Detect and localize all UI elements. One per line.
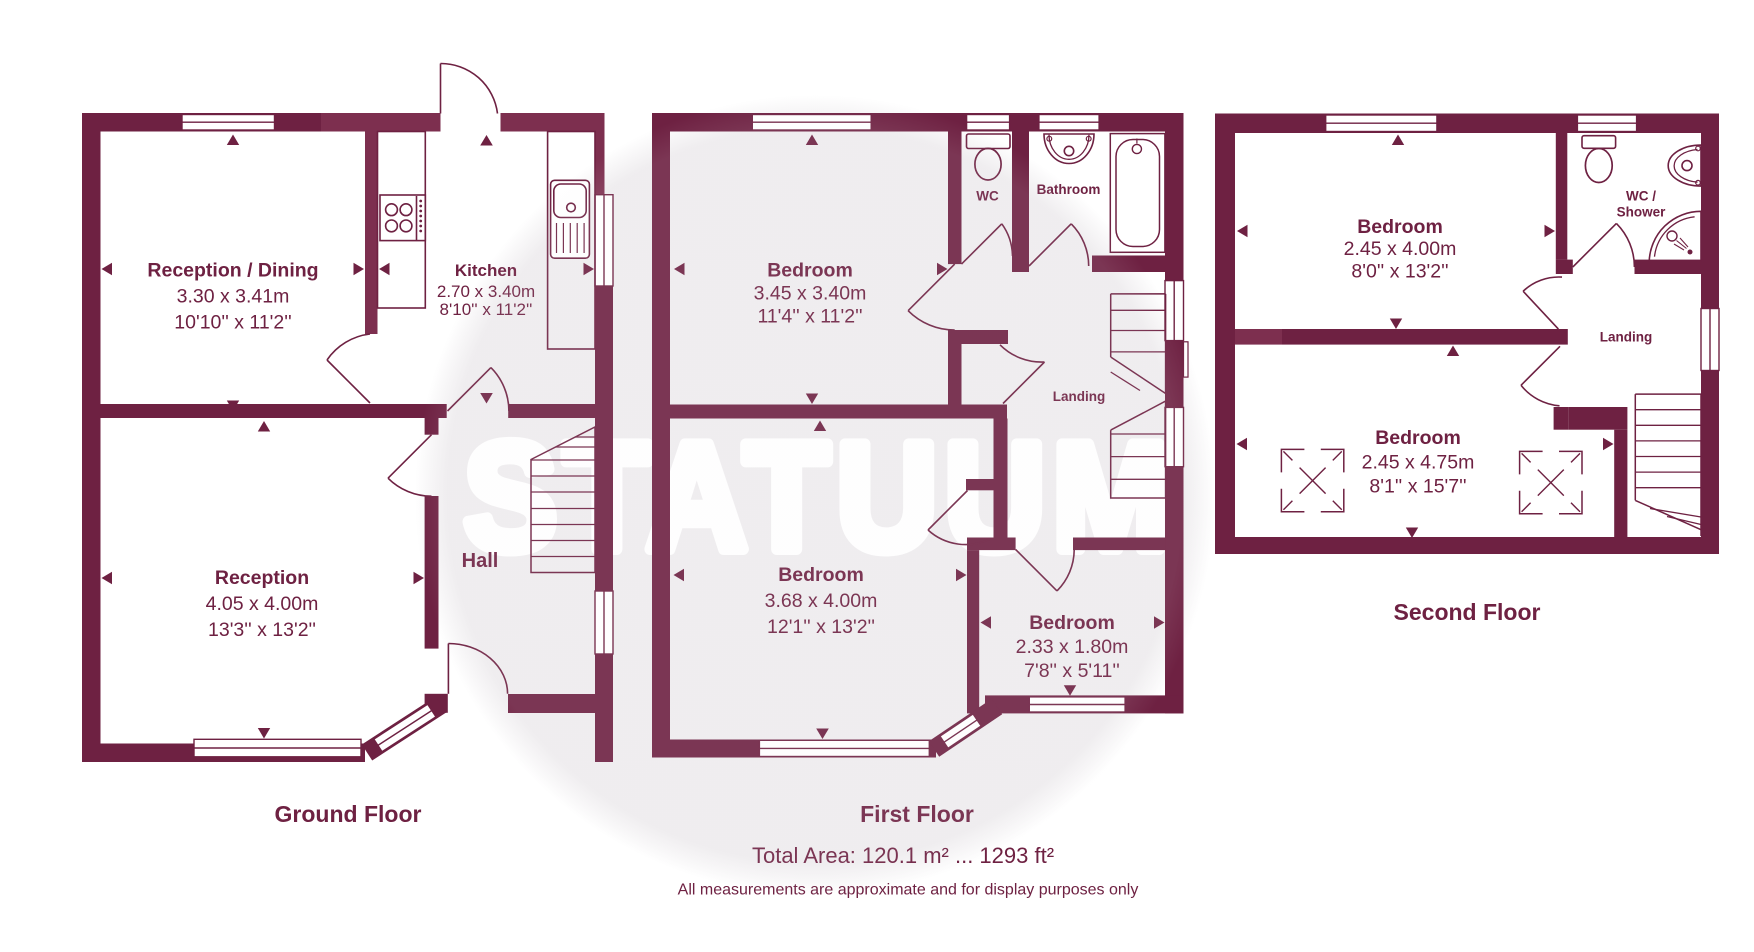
svg-text:Second Floor: Second Floor [1394, 599, 1541, 625]
svg-text:Bedroom: Bedroom [1375, 427, 1461, 449]
svg-text:2.45 x 4.00m: 2.45 x 4.00m [1344, 238, 1457, 260]
svg-text:8'0'' x 13'2'': 8'0'' x 13'2'' [1351, 261, 1448, 283]
svg-text:Shower: Shower [1617, 205, 1667, 220]
svg-text:Reception / Dining: Reception / Dining [147, 260, 318, 282]
svg-text:8'1'' x 15'7'': 8'1'' x 15'7'' [1369, 476, 1466, 498]
svg-text:2.45 x 4.75m: 2.45 x 4.75m [1362, 452, 1475, 474]
svg-text:3.30 x 3.41m: 3.30 x 3.41m [177, 286, 290, 308]
svg-text:Reception: Reception [215, 567, 309, 589]
svg-text:4.05 x 4.00m: 4.05 x 4.00m [206, 593, 319, 615]
svg-text:10'10'' x 11'2'': 10'10'' x 11'2'' [174, 312, 291, 334]
svg-text:13'3'' x 13'2'': 13'3'' x 13'2'' [208, 619, 316, 641]
svg-text:Bedroom: Bedroom [1357, 216, 1443, 238]
svg-text:Ground Floor: Ground Floor [275, 801, 422, 827]
svg-text:WC /: WC / [1626, 189, 1656, 204]
svg-text:Landing: Landing [1600, 330, 1653, 345]
